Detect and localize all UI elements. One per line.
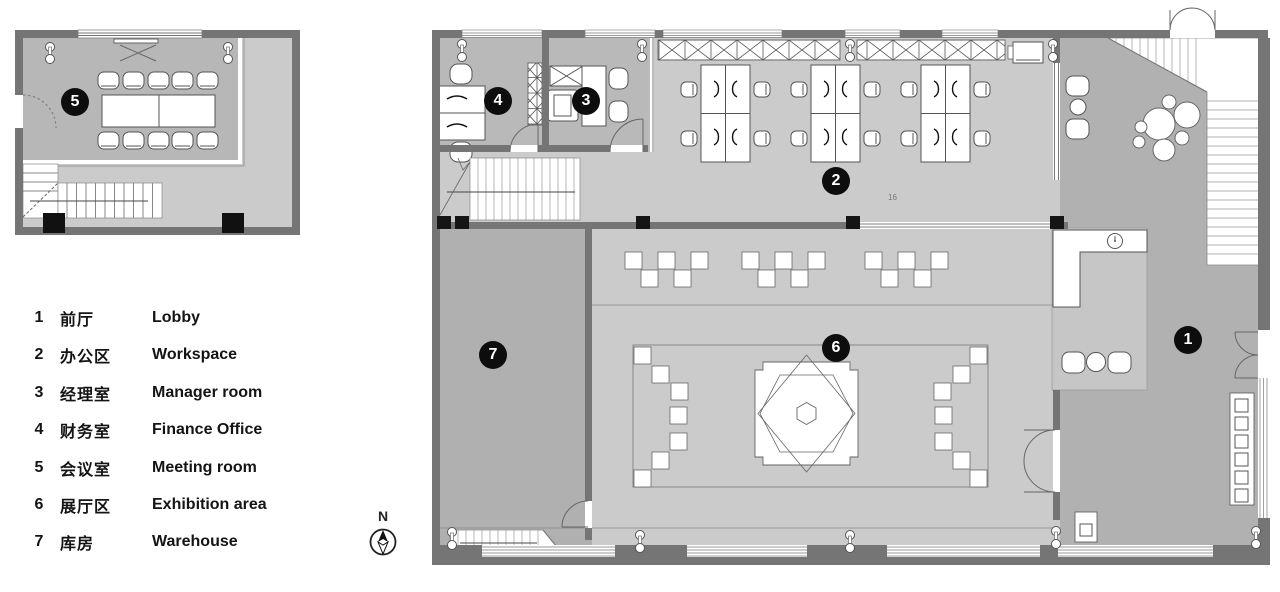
legend-number: 3 <box>28 384 50 402</box>
legend-number: 7 <box>28 533 50 551</box>
legend-label-zh: 办公区 <box>60 343 152 367</box>
conference-table <box>102 95 215 127</box>
cabinet-hatch-right <box>857 40 1005 60</box>
legend-label-en: Exhibition area <box>152 496 308 514</box>
glazed-partition-3 <box>850 222 1050 229</box>
legend-row-meeting-room: 5 会议室 Meeting room <box>28 456 308 480</box>
legend-label-zh: 库房 <box>60 530 152 554</box>
legend-label-en: Meeting room <box>152 459 308 477</box>
mini-floor-plan <box>10 25 305 240</box>
display-shelf <box>1230 393 1254 505</box>
main-floor-plan <box>425 0 1280 592</box>
floor-fixture <box>1075 512 1097 542</box>
right-window <box>1258 378 1270 518</box>
glazed-partition-2 <box>1053 63 1060 180</box>
legend-number: 2 <box>28 346 50 364</box>
legend-number: 4 <box>28 421 50 439</box>
legend-label-zh: 前厅 <box>60 306 152 330</box>
legend-label-zh: 展厅区 <box>60 493 152 517</box>
legend-row-exhibition-area: 6 展厅区 Exhibition area <box>28 493 308 517</box>
legend-number: 1 <box>28 309 50 327</box>
badge-warehouse: 7 <box>479 341 507 369</box>
mini-window <box>78 30 202 38</box>
north-arrow-icon <box>363 522 403 562</box>
legend-number: 5 <box>28 459 50 477</box>
badge-workspace: 2 <box>822 167 850 195</box>
warehouse-floor <box>437 229 592 557</box>
cabinet-hatch-vertical <box>528 63 542 125</box>
legend-row-workspace: 2 办公区 Workspace <box>28 343 308 367</box>
waiting-chairs-bottom <box>1062 352 1131 373</box>
floor-plan-page: 1 2 3 4 5 6 7 16 1 前厅 Lobby 2 办公区 Worksp… <box>0 0 1280 592</box>
stair-note: 16 <box>888 193 897 202</box>
legend-row-finance-office: 4 财务室 Finance Office <box>28 418 308 442</box>
legend-label-en: Warehouse <box>152 533 308 551</box>
legend-number: 6 <box>28 496 50 514</box>
legend-label-zh: 财务室 <box>60 418 152 442</box>
legend-row-manager-room: 3 经理室 Manager room <box>28 381 308 405</box>
legend-label-en: Manager room <box>152 384 308 402</box>
central-display-platform <box>755 355 858 472</box>
badge-lobby: 1 <box>1174 326 1202 354</box>
legend-label-en: Finance Office <box>152 421 308 439</box>
legend-label-zh: 会议室 <box>60 456 152 480</box>
badge-exhibition-area: 6 <box>822 334 850 362</box>
badge-meeting-room: 5 <box>61 88 89 116</box>
legend-label-zh: 经理室 <box>60 381 152 405</box>
badge-finance-office: 4 <box>484 87 512 115</box>
legend-row-warehouse: 7 库房 Warehouse <box>28 530 308 554</box>
legend-label-en: Workspace <box>152 346 308 364</box>
cabinet-hatch-left <box>658 40 840 60</box>
legend-label-en: Lobby <box>152 309 308 327</box>
copier <box>1008 42 1043 63</box>
badge-manager-room: 3 <box>572 87 600 115</box>
glazed-partition-1 <box>648 38 654 152</box>
legend-row-lobby: 1 前厅 Lobby <box>28 306 308 330</box>
